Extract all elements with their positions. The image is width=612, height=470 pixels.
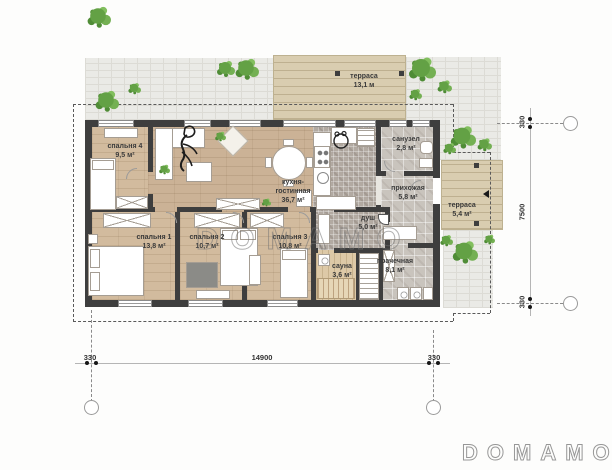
room-name: кухня-гостинная xyxy=(266,179,320,197)
washing-machine xyxy=(410,287,422,300)
bush-icon xyxy=(445,144,453,152)
watermark-corner: DOMAMO xyxy=(462,440,612,466)
sideboard xyxy=(216,198,260,210)
sauna-bench xyxy=(317,278,355,299)
watermark-center: DOMAMO xyxy=(196,221,413,257)
terrace-post xyxy=(335,71,340,76)
room-label-living: кухня-гостинная 36,7 м² xyxy=(266,179,320,205)
exterior-wall-top xyxy=(85,120,440,127)
wardrobe xyxy=(103,213,151,228)
room-area: 13,1 м xyxy=(350,82,378,91)
bush-icon xyxy=(411,90,419,98)
toilet xyxy=(420,141,433,154)
room-area: 2,8 м² xyxy=(392,145,420,154)
dimension-line-bottom xyxy=(75,363,450,364)
boundary-top xyxy=(73,104,453,105)
boundary-right-lower xyxy=(453,313,454,321)
stove xyxy=(314,146,330,168)
fridge xyxy=(357,128,375,147)
axis-line xyxy=(497,123,563,124)
window xyxy=(389,120,407,127)
entry-door-opening xyxy=(433,178,440,204)
tree-icon xyxy=(456,243,473,260)
partition xyxy=(376,127,381,176)
dimension-line-right xyxy=(530,108,531,316)
pillow xyxy=(90,249,100,268)
chair xyxy=(306,157,313,168)
room-name: терраса xyxy=(448,202,476,211)
dimension-tick xyxy=(528,297,532,301)
terrace-post xyxy=(399,71,404,76)
pillow xyxy=(92,160,114,170)
room-area: 5,8 м² xyxy=(391,194,425,203)
room-name: санузел xyxy=(392,136,420,145)
room-name: спальня 1 xyxy=(137,234,172,243)
dim-330-right: 330 xyxy=(428,353,441,362)
room-label-hallway: прихожая 5,8 м² xyxy=(391,185,425,203)
terrace-top xyxy=(273,55,406,120)
dim-7500: 7500 xyxy=(518,204,527,221)
room-label-bedroom1: спальня 1 13,8 м² xyxy=(137,234,172,252)
dimension-tick xyxy=(528,305,532,309)
room-area: 8,1 м² xyxy=(377,267,413,276)
dimension-tick xyxy=(528,125,532,129)
terrace-post xyxy=(474,163,479,168)
terrace-glass-door xyxy=(283,120,336,127)
plant-icon xyxy=(216,132,223,139)
dresser xyxy=(186,262,218,288)
room-area: 36,7 м² xyxy=(266,197,320,206)
tree-icon xyxy=(238,60,254,76)
window xyxy=(412,120,430,127)
dim-330-top: 330 xyxy=(518,116,527,129)
partition xyxy=(404,171,433,176)
boundary-bottom xyxy=(73,321,453,322)
wardrobe xyxy=(116,196,148,209)
dim-330-bottom: 330 xyxy=(518,296,527,309)
desk xyxy=(104,128,138,138)
room-area: 9,5 м² xyxy=(108,152,143,161)
tree-icon xyxy=(219,62,231,74)
bathroom-sink xyxy=(419,158,433,168)
dim-14900: 14900 xyxy=(252,353,273,362)
entry-arrow-icon xyxy=(479,190,489,198)
axis-bubble xyxy=(426,400,441,415)
boundary-right-upper xyxy=(453,104,454,152)
washing-machine xyxy=(397,287,409,300)
dresser xyxy=(249,255,261,285)
dim-330-left: 330 xyxy=(84,353,97,362)
partition xyxy=(381,171,386,176)
boundary-right-lower-jog xyxy=(453,313,490,314)
axis-bubble xyxy=(563,296,578,311)
bush-icon xyxy=(479,139,489,149)
room-name: прачечная xyxy=(377,258,413,267)
window xyxy=(188,300,223,307)
room-area: 3,6 м² xyxy=(332,272,352,281)
tree-icon xyxy=(454,128,471,145)
terrace-top-label: терраса 13,1 м xyxy=(350,73,378,91)
room-label-sauna: сауна 3,6 м² xyxy=(332,263,352,281)
bush-icon xyxy=(130,84,138,92)
axis-line xyxy=(497,303,563,304)
partition xyxy=(175,212,180,300)
window xyxy=(98,120,134,127)
sink-sketch-icon xyxy=(331,130,351,150)
window xyxy=(267,300,298,307)
kitchen-island xyxy=(316,196,356,210)
window xyxy=(344,120,376,127)
bush-icon xyxy=(442,236,450,244)
window xyxy=(118,300,152,307)
laundry-counter xyxy=(423,287,433,300)
pillow xyxy=(90,272,100,291)
axis-line xyxy=(433,330,434,402)
terrace-right xyxy=(441,160,503,230)
chair xyxy=(265,157,272,168)
tree-icon xyxy=(90,8,106,24)
bush-icon xyxy=(439,81,449,91)
room-label-bathroom: санузел 2,8 м² xyxy=(392,136,420,154)
room-name: сауна xyxy=(332,263,352,272)
axis-bubble xyxy=(563,116,578,131)
terrace-right-label: терраса 5,4 м² xyxy=(448,202,476,220)
boundary-left xyxy=(73,104,74,322)
tree-icon xyxy=(98,92,114,108)
tree-icon xyxy=(412,59,430,77)
bush-icon xyxy=(485,235,492,242)
room-label-laundry: прачечная 8,1 м² xyxy=(377,258,413,276)
room-area: 13,8 м² xyxy=(137,243,172,252)
dimension-tick xyxy=(528,117,532,121)
person-sketch-icon xyxy=(165,122,207,174)
boundary-right-jog xyxy=(453,152,490,153)
desk xyxy=(196,290,230,299)
room-area: 5,4 м² xyxy=(448,211,476,220)
room-name: прихожая xyxy=(391,185,425,194)
room-name: спальня 4 xyxy=(108,143,143,152)
partition xyxy=(148,127,153,172)
boundary-right xyxy=(490,152,491,313)
exterior-wall-right xyxy=(433,120,440,307)
terrace-post xyxy=(474,221,479,226)
axis-bubble xyxy=(84,400,99,415)
chair xyxy=(283,139,294,146)
floor-plan: спальня 4 9,5 м² кухня-гостинная 36,7 м²… xyxy=(0,0,612,470)
nightstand xyxy=(88,234,98,244)
room-label-bedroom4: спальня 4 9,5 м² xyxy=(108,143,143,161)
plant-icon xyxy=(160,165,167,172)
room-name: терраса xyxy=(350,73,378,82)
dining-table xyxy=(272,146,306,180)
